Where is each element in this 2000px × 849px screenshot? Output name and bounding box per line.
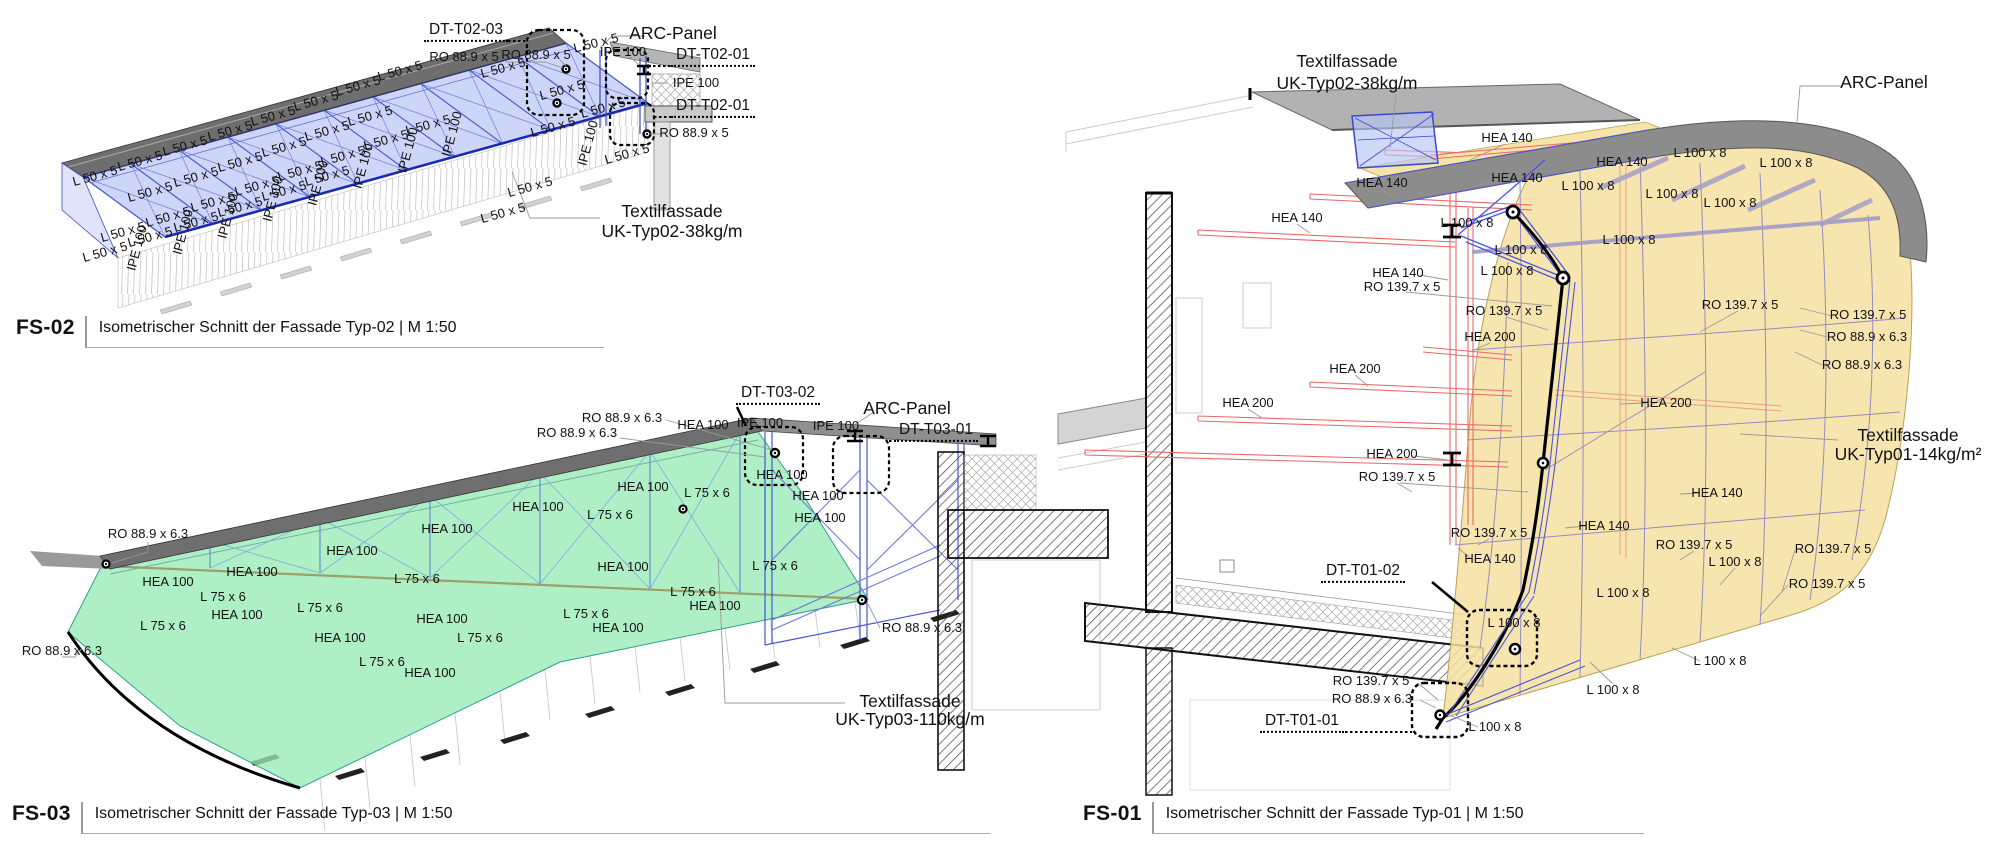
fs03-lower-panel	[972, 560, 1100, 710]
fs01-drawing	[1058, 84, 1927, 795]
fs03-concrete-slab	[948, 510, 1108, 558]
fs02-caption-text: Isometrischer Schnitt der Fassade Typ-02…	[85, 316, 604, 348]
fs03-caption: FS-03 Isometrischer Schnitt der Fassade …	[12, 802, 990, 834]
fs02-insulation	[652, 74, 700, 106]
fs02-caption: FS-02 Isometrischer Schnitt der Fassade …	[16, 316, 604, 348]
fs03-caption-text: Isometrischer Schnitt der Fassade Typ-03…	[81, 802, 990, 834]
fs01-steel-beam-left	[1058, 398, 1146, 444]
fs03-insulation	[964, 455, 1036, 510]
fs03-flat-roof	[752, 418, 996, 446]
fs01-caption-text: Isometrischer Schnitt der Fassade Typ-01…	[1152, 802, 1644, 834]
fs01-ghost-window2	[1243, 283, 1271, 328]
drawing-sheet: L 50 x 5L 50 x 5L 50 x 5L 50 x 5L 50 x 5…	[0, 0, 2000, 849]
fs02-caption-code: FS-02	[16, 316, 85, 340]
fs02-arc-panel-slab	[610, 42, 700, 72]
fs01-caption-code: FS-01	[1083, 802, 1152, 826]
fs02-concrete-slab	[645, 106, 712, 122]
isometric-drawings	[0, 0, 2000, 849]
fs01-caption: FS-01 Isometrischer Schnitt der Fassade …	[1083, 802, 1644, 834]
fs01-ghost-window1	[1176, 298, 1202, 413]
fs01-arc-panel-top	[1252, 84, 1640, 130]
fs03-roof-tip	[30, 551, 110, 569]
fs01-ghost-roof	[1066, 95, 1253, 152]
fs03-concrete-wall	[938, 452, 964, 770]
fs01-wall-lower	[1146, 648, 1172, 795]
fs02-wall-below	[654, 122, 670, 210]
fs02-drawing	[62, 28, 712, 314]
fs03-caption-code: FS-03	[12, 802, 81, 826]
fs01-wall	[1146, 193, 1172, 612]
fs03-drawing	[30, 407, 1108, 831]
fs01-floor-detail	[1220, 560, 1234, 572]
